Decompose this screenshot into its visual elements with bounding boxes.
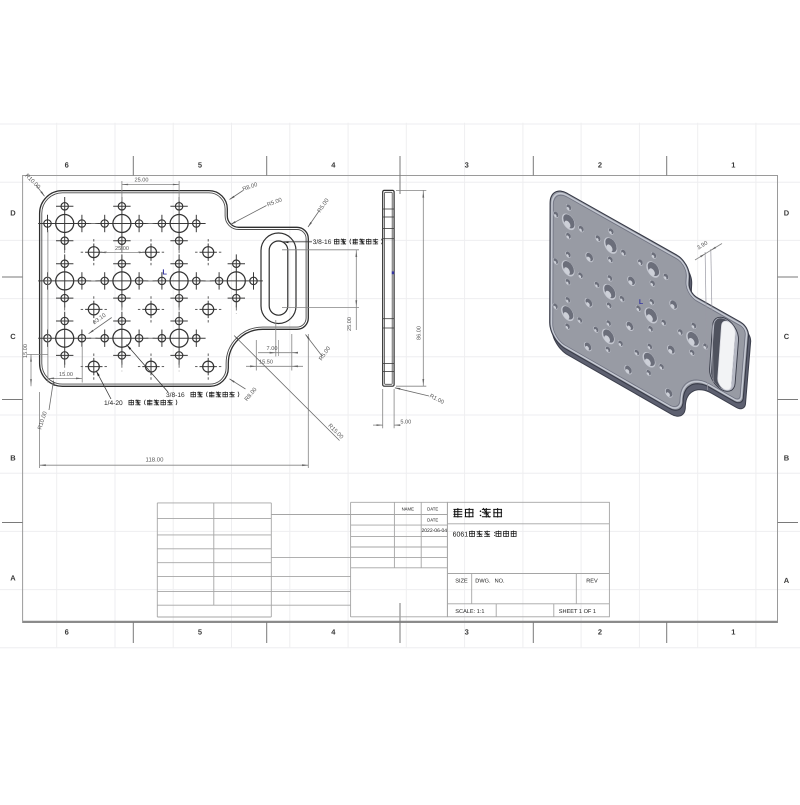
svg-text:5: 5 — [198, 161, 202, 170]
svg-text:15.00: 15.00 — [59, 372, 73, 378]
svg-text:5: 5 — [198, 628, 202, 637]
svg-text:3: 3 — [465, 628, 469, 637]
svg-text:25.00: 25.00 — [115, 246, 129, 252]
svg-text:25.00: 25.00 — [135, 178, 149, 184]
svg-text:1/4-20: 1/4-20 — [104, 400, 123, 407]
svg-text:3/8-16: 3/8-16 — [313, 239, 332, 246]
svg-text:REV: REV — [586, 578, 598, 584]
svg-text:6: 6 — [65, 628, 69, 637]
svg-text:SIZE: SIZE — [455, 578, 468, 584]
svg-text:D: D — [784, 209, 790, 218]
svg-text:NAME: NAME — [402, 506, 415, 511]
svg-text:SCALE: 1:1: SCALE: 1:1 — [455, 609, 484, 615]
svg-text:L: L — [639, 299, 644, 306]
svg-text:25.00: 25.00 — [347, 317, 353, 331]
svg-text:L: L — [162, 268, 167, 277]
svg-text:A: A — [784, 576, 790, 585]
svg-text:C: C — [10, 332, 16, 341]
svg-text:1: 1 — [731, 628, 735, 637]
svg-text:C: C — [784, 332, 790, 341]
svg-text:86.00: 86.00 — [416, 326, 422, 340]
svg-text:3/8-16: 3/8-16 — [166, 392, 185, 399]
svg-text:5.00: 5.00 — [400, 419, 411, 425]
svg-text:2: 2 — [598, 628, 602, 637]
svg-text:B: B — [10, 454, 16, 463]
svg-text:1: 1 — [731, 161, 735, 170]
svg-text:SHEET 1 OF 1: SHEET 1 OF 1 — [559, 609, 596, 615]
svg-text:2022-06-04: 2022-06-04 — [422, 528, 448, 534]
svg-text:6: 6 — [65, 161, 69, 170]
svg-text:15.00: 15.00 — [23, 344, 29, 358]
svg-text:3: 3 — [465, 161, 469, 170]
svg-text:D: D — [10, 209, 16, 218]
svg-text:DATE: DATE — [427, 517, 438, 522]
svg-text:DATE: DATE — [427, 506, 438, 511]
svg-text:118.00: 118.00 — [146, 456, 165, 463]
svg-text:7.00: 7.00 — [267, 346, 278, 352]
svg-text:A: A — [10, 574, 16, 583]
svg-text:NO.: NO. — [495, 578, 505, 584]
svg-text:B: B — [784, 454, 790, 463]
svg-text:6061: 6061 — [453, 531, 469, 538]
svg-text:2: 2 — [598, 161, 602, 170]
svg-text:DWG.: DWG. — [475, 578, 491, 584]
